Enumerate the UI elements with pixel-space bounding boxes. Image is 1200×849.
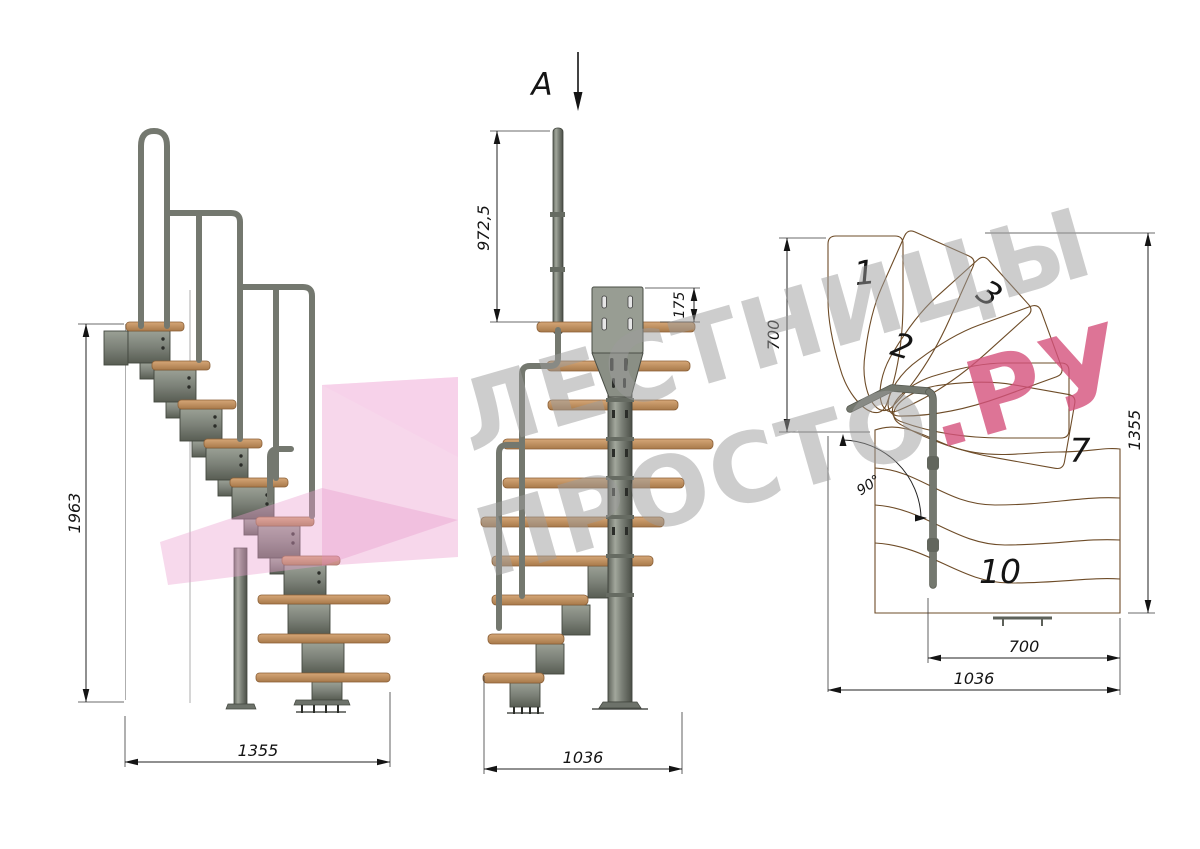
- watermark: ЛЕСТНИЦЫ ПРОСТО.РУ: [160, 186, 1142, 602]
- section-arrow: А: [529, 52, 582, 111]
- handrail-loop: [141, 131, 167, 326]
- dim-rail-height: 972,5: [474, 205, 493, 251]
- drawing-canvas: 1963 1355 А 972,5: [0, 0, 1200, 849]
- base-plate: [294, 700, 350, 705]
- anchor-bolts: [296, 705, 346, 713]
- rail-joint: [927, 538, 939, 552]
- tread-number: 7: [1070, 431, 1091, 470]
- dim-plan-flight-width: 700: [1009, 637, 1040, 656]
- dim-side-height: 1963: [65, 493, 84, 534]
- post-base-plate: [226, 704, 256, 709]
- dim-plan-depth: 1036: [954, 669, 995, 688]
- section-label: А: [529, 67, 552, 103]
- dim-front-depth: 1036: [563, 748, 604, 767]
- section-arrow-head-icon: [574, 92, 583, 111]
- post-joint: [550, 267, 565, 272]
- staircase-technical-drawing: 1963 1355 А 972,5: [0, 0, 1200, 849]
- plan-base-plate: [993, 618, 1052, 626]
- dim-side-width: 1355: [238, 741, 279, 760]
- tread-number: 10: [979, 552, 1021, 591]
- front-view-dim-rail: 972,5: [474, 131, 550, 322]
- handrail-post: [553, 128, 563, 334]
- post-joint: [550, 212, 565, 217]
